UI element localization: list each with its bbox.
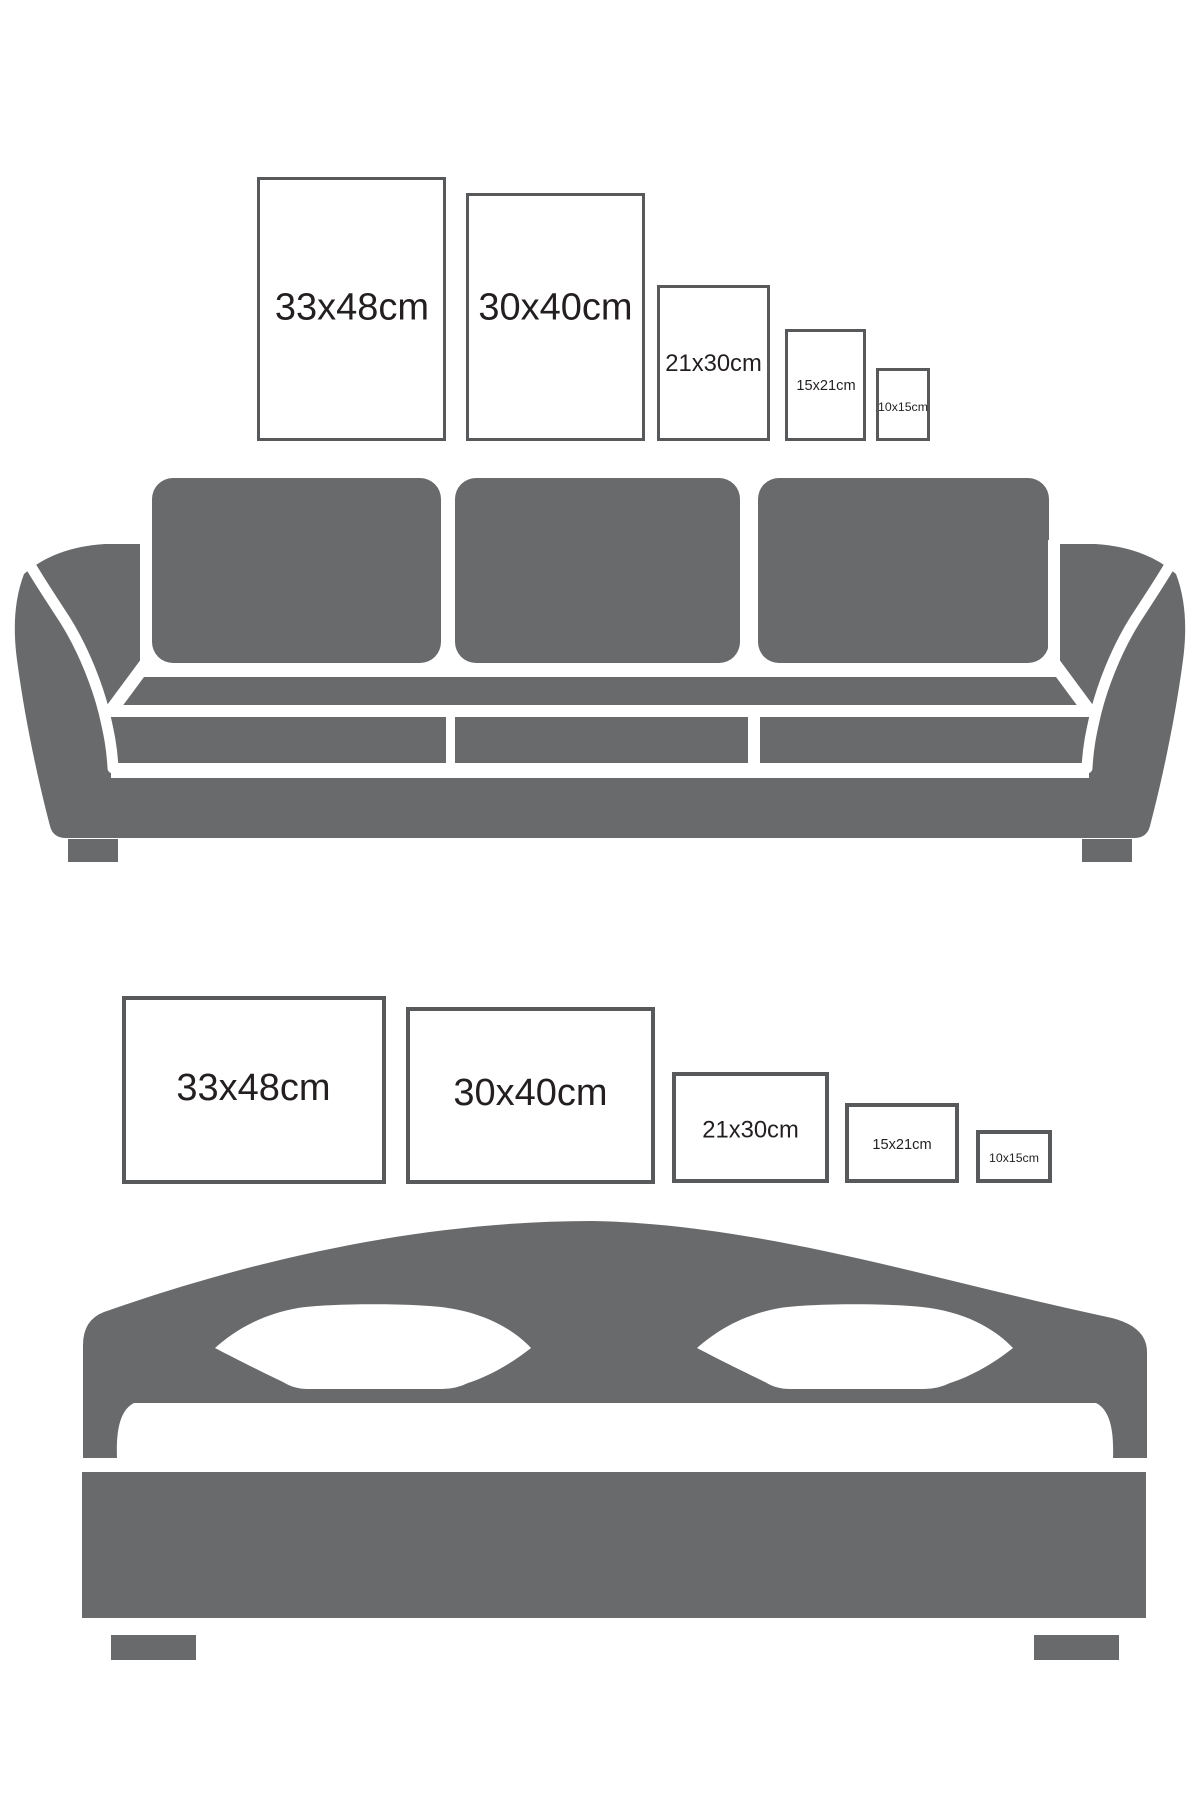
svg-text:21x30cm: 21x30cm: [702, 1117, 799, 1144]
svg-text:30x40cm: 30x40cm: [478, 287, 632, 329]
svg-text:30x40cm: 30x40cm: [453, 1072, 607, 1114]
svg-text:15x21cm: 15x21cm: [872, 1137, 931, 1153]
svg-text:21x30cm: 21x30cm: [665, 350, 762, 377]
svg-text:10x15cm: 10x15cm: [878, 400, 928, 414]
svg-text:33x48cm: 33x48cm: [275, 287, 429, 329]
svg-text:15x21cm: 15x21cm: [796, 378, 855, 394]
svg-text:33x48cm: 33x48cm: [176, 1067, 330, 1109]
svg-text:10x15cm: 10x15cm: [989, 1151, 1039, 1165]
